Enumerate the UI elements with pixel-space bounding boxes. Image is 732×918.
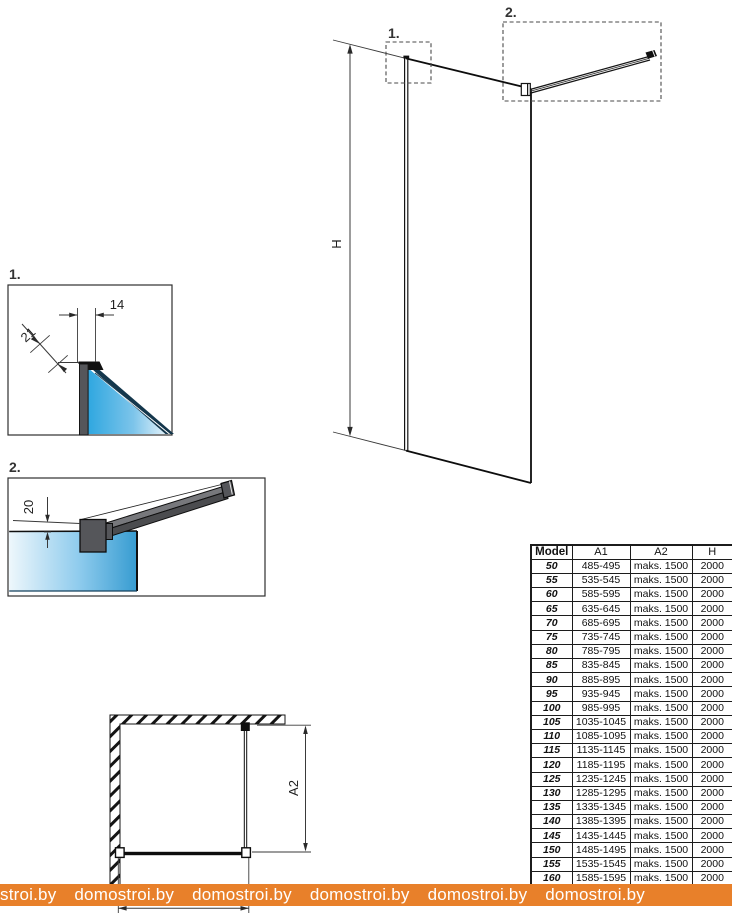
detail-1-title: 1. — [9, 266, 21, 282]
table-cell-model: 100 — [531, 701, 572, 715]
table-cell-model: 60 — [531, 588, 572, 602]
height-dimension: H — [329, 40, 406, 451]
detail-2-view: 2. 20 — [0, 450, 285, 610]
table-cell-model: 55 — [531, 573, 572, 587]
table-row: 95 935-945 maks. 1500 2000 — [531, 687, 732, 701]
table-cell-model: 85 — [531, 659, 572, 673]
table-header-model: Model — [531, 545, 572, 559]
table-cell-model: 140 — [531, 815, 572, 829]
table-row: 65 635-645 maks. 1500 2000 — [531, 602, 732, 616]
wall-cap — [221, 481, 235, 499]
table-cell-a2: maks. 1500 — [630, 815, 692, 829]
table-cell-a2: maks. 1500 — [630, 857, 692, 871]
table-cell-model: 70 — [531, 616, 572, 630]
dimension-a2: A2 — [252, 725, 311, 852]
table-cell-a2: maks. 1500 — [630, 616, 692, 630]
table-cell-a2: maks. 1500 — [630, 630, 692, 644]
table-cell-h: 2000 — [692, 715, 732, 729]
table-cell-a1: 1285-1295 — [572, 786, 630, 800]
table-cell-h: 2000 — [692, 602, 732, 616]
detail-1-view: 1. 14 — [0, 258, 190, 444]
detail-2-title: 2. — [9, 459, 21, 475]
table-row: 110 1085-1095 maks. 1500 2000 — [531, 729, 732, 743]
table-row: 145 1435-1445 maks. 1500 2000 — [531, 829, 732, 843]
table-header-h: H — [692, 545, 732, 559]
table-cell-a2: maks. 1500 — [630, 829, 692, 843]
table-cell-a1: 1035-1045 — [572, 715, 630, 729]
table-row: 55 535-545 maks. 1500 2000 — [531, 573, 732, 587]
table-cell-h: 2000 — [692, 573, 732, 587]
table-cell-a2: maks. 1500 — [630, 843, 692, 857]
table-cell-a1: 985-995 — [572, 701, 630, 715]
table-cell-a2: maks. 1500 — [630, 701, 692, 715]
table-cell-a1: 535-545 — [572, 573, 630, 587]
table-cell-h: 2000 — [692, 659, 732, 673]
table-cell-a1: 735-745 — [572, 630, 630, 644]
table-cell-h: 2000 — [692, 630, 732, 644]
table-cell-h: 2000 — [692, 588, 732, 602]
detail-1-callout: 1. — [386, 25, 431, 83]
table-cell-a1: 1435-1445 — [572, 829, 630, 843]
table-cell-model: 105 — [531, 715, 572, 729]
table-cell-model: 130 — [531, 786, 572, 800]
height-dim-label: H — [329, 239, 344, 248]
table-cell-a2: maks. 1500 — [630, 715, 692, 729]
wall-bracket-plan — [241, 722, 250, 731]
drawing-canvas: H 1. 2. — [0, 0, 732, 918]
table-cell-h: 2000 — [692, 559, 732, 573]
table-body: 50 485-495 maks. 1500 2000 55 535-545 ma… — [531, 559, 732, 885]
table-header-a1: A1 — [572, 545, 630, 559]
table-row: 105 1035-1045 maks. 1500 2000 — [531, 715, 732, 729]
glass-panel-outline — [406, 58, 531, 483]
support-bar — [521, 50, 657, 96]
bar-socket — [106, 524, 113, 540]
table-cell-h: 2000 — [692, 857, 732, 871]
table-cell-a2: maks. 1500 — [630, 644, 692, 658]
support-bar-plan — [241, 722, 250, 848]
table-row: 70 685-695 maks. 1500 2000 — [531, 616, 732, 630]
table-cell-model: 135 — [531, 800, 572, 814]
table-cell-model: 155 — [531, 857, 572, 871]
table-row: 130 1285-1295 maks. 1500 2000 — [531, 786, 732, 800]
table-row: 90 885-895 maks. 1500 2000 — [531, 673, 732, 687]
table-cell-h: 2000 — [692, 687, 732, 701]
dim-20-label: 20 — [21, 500, 36, 514]
table-header-row: Model A1 A2 H — [531, 545, 732, 559]
dim-a2-label: A2 — [286, 780, 301, 796]
table-cell-a1: 685-695 — [572, 616, 630, 630]
table-cell-a1: 1135-1145 — [572, 744, 630, 758]
table-cell-model: 120 — [531, 758, 572, 772]
table-cell-model: 90 — [531, 673, 572, 687]
watermark-text: domostroi.by — [545, 885, 645, 905]
detail-2-callout-label: 2. — [505, 4, 517, 20]
table-cell-a2: maks. 1500 — [630, 602, 692, 616]
glass-panel — [9, 531, 137, 591]
table-cell-a1: 1535-1545 — [572, 857, 630, 871]
table-cell-a2: maks. 1500 — [630, 559, 692, 573]
clamp-bracket — [80, 520, 106, 553]
table-row: 120 1185-1195 maks. 1500 2000 — [531, 758, 732, 772]
table-cell-h: 2000 — [692, 772, 732, 786]
table-cell-h: 2000 — [692, 758, 732, 772]
table-row: 150 1485-1495 maks. 1500 2000 — [531, 843, 732, 857]
table-cell-h: 2000 — [692, 829, 732, 843]
table-cell-model: 115 — [531, 744, 572, 758]
wall-bracket-plan — [116, 848, 125, 858]
table-cell-a1: 835-845 — [572, 659, 630, 673]
table-cell-a2: maks. 1500 — [630, 758, 692, 772]
watermark-text: domostroi.by — [310, 885, 410, 905]
table-cell-model: 95 — [531, 687, 572, 701]
table-cell-h: 2000 — [692, 701, 732, 715]
table-row: 60 585-595 maks. 1500 2000 — [531, 588, 732, 602]
table-cell-model: 145 — [531, 829, 572, 843]
detail-1-callout-label: 1. — [388, 25, 400, 41]
table-row: 85 835-845 maks. 1500 2000 — [531, 659, 732, 673]
table-cell-a1: 485-495 — [572, 559, 630, 573]
table-row: 50 485-495 maks. 1500 2000 — [531, 559, 732, 573]
watermark-text: domostroi.by — [74, 885, 174, 905]
table-cell-a2: maks. 1500 — [630, 729, 692, 743]
table-cell-model: 80 — [531, 644, 572, 658]
table-cell-a2: maks. 1500 — [630, 687, 692, 701]
table-row: 135 1335-1345 maks. 1500 2000 — [531, 800, 732, 814]
table-cell-a2: maks. 1500 — [630, 786, 692, 800]
table-cell-h: 2000 — [692, 673, 732, 687]
dim-14-label: 14 — [110, 297, 124, 312]
table-cell-a2: maks. 1500 — [630, 800, 692, 814]
table-cell-h: 2000 — [692, 815, 732, 829]
table-cell-a1: 885-895 — [572, 673, 630, 687]
table-cell-a1: 785-795 — [572, 644, 630, 658]
table-cell-a1: 935-945 — [572, 687, 630, 701]
table-cell-a2: maks. 1500 — [630, 772, 692, 786]
table-cell-a1: 1185-1195 — [572, 758, 630, 772]
table-cell-a1: 1335-1345 — [572, 800, 630, 814]
watermark-text: domostroi.by — [192, 885, 292, 905]
table-cell-a1: 585-595 — [572, 588, 630, 602]
table-cell-a1: 1485-1495 — [572, 843, 630, 857]
table-cell-h: 2000 — [692, 644, 732, 658]
wall-profile — [403, 56, 409, 451]
table-cell-h: 2000 — [692, 616, 732, 630]
watermark-band: stroi.by domostroi.by domostroi.by domos… — [0, 884, 732, 906]
table-cell-h: 2000 — [692, 843, 732, 857]
table-cell-model: 110 — [531, 729, 572, 743]
table-cell-a1: 1085-1095 — [572, 729, 630, 743]
main-elevation-view: H 1. 2. — [320, 0, 732, 500]
table-header-a2: A2 — [630, 545, 692, 559]
table-row: 115 1135-1145 maks. 1500 2000 — [531, 744, 732, 758]
table-cell-model: 125 — [531, 772, 572, 786]
table-row: 100 985-995 maks. 1500 2000 — [531, 701, 732, 715]
table-cell-model: 75 — [531, 630, 572, 644]
table-row: 80 785-795 maks. 1500 2000 — [531, 644, 732, 658]
table-cell-h: 2000 — [692, 729, 732, 743]
table-cell-h: 2000 — [692, 800, 732, 814]
table-cell-h: 2000 — [692, 744, 732, 758]
table-row: 155 1535-1545 maks. 1500 2000 — [531, 857, 732, 871]
table-cell-model: 65 — [531, 602, 572, 616]
size-table: Model A1 A2 H 50 485-495 maks. 1500 2000… — [530, 544, 732, 887]
wall-hatch — [110, 715, 285, 886]
table-cell-a2: maks. 1500 — [630, 659, 692, 673]
table-cell-h: 2000 — [692, 786, 732, 800]
table-row: 140 1385-1395 maks. 1500 2000 — [531, 815, 732, 829]
watermark-text: domostroi.by — [428, 885, 528, 905]
table-cell-model: 150 — [531, 843, 572, 857]
glass-panel-plan — [116, 848, 251, 858]
watermark-text: stroi.by — [0, 885, 56, 905]
table-row: 75 735-745 maks. 1500 2000 — [531, 630, 732, 644]
table-cell-a2: maks. 1500 — [630, 673, 692, 687]
table-cell-a1: 635-645 — [572, 602, 630, 616]
table-cell-a1: 1385-1395 — [572, 815, 630, 829]
table-cell-a2: maks. 1500 — [630, 744, 692, 758]
table-cell-a1: 1235-1245 — [572, 772, 630, 786]
table-row: 125 1235-1245 maks. 1500 2000 — [531, 772, 732, 786]
end-bracket-plan — [242, 848, 251, 858]
table-cell-model: 50 — [531, 559, 572, 573]
table-cell-a2: maks. 1500 — [630, 573, 692, 587]
table-cell-a2: maks. 1500 — [630, 588, 692, 602]
